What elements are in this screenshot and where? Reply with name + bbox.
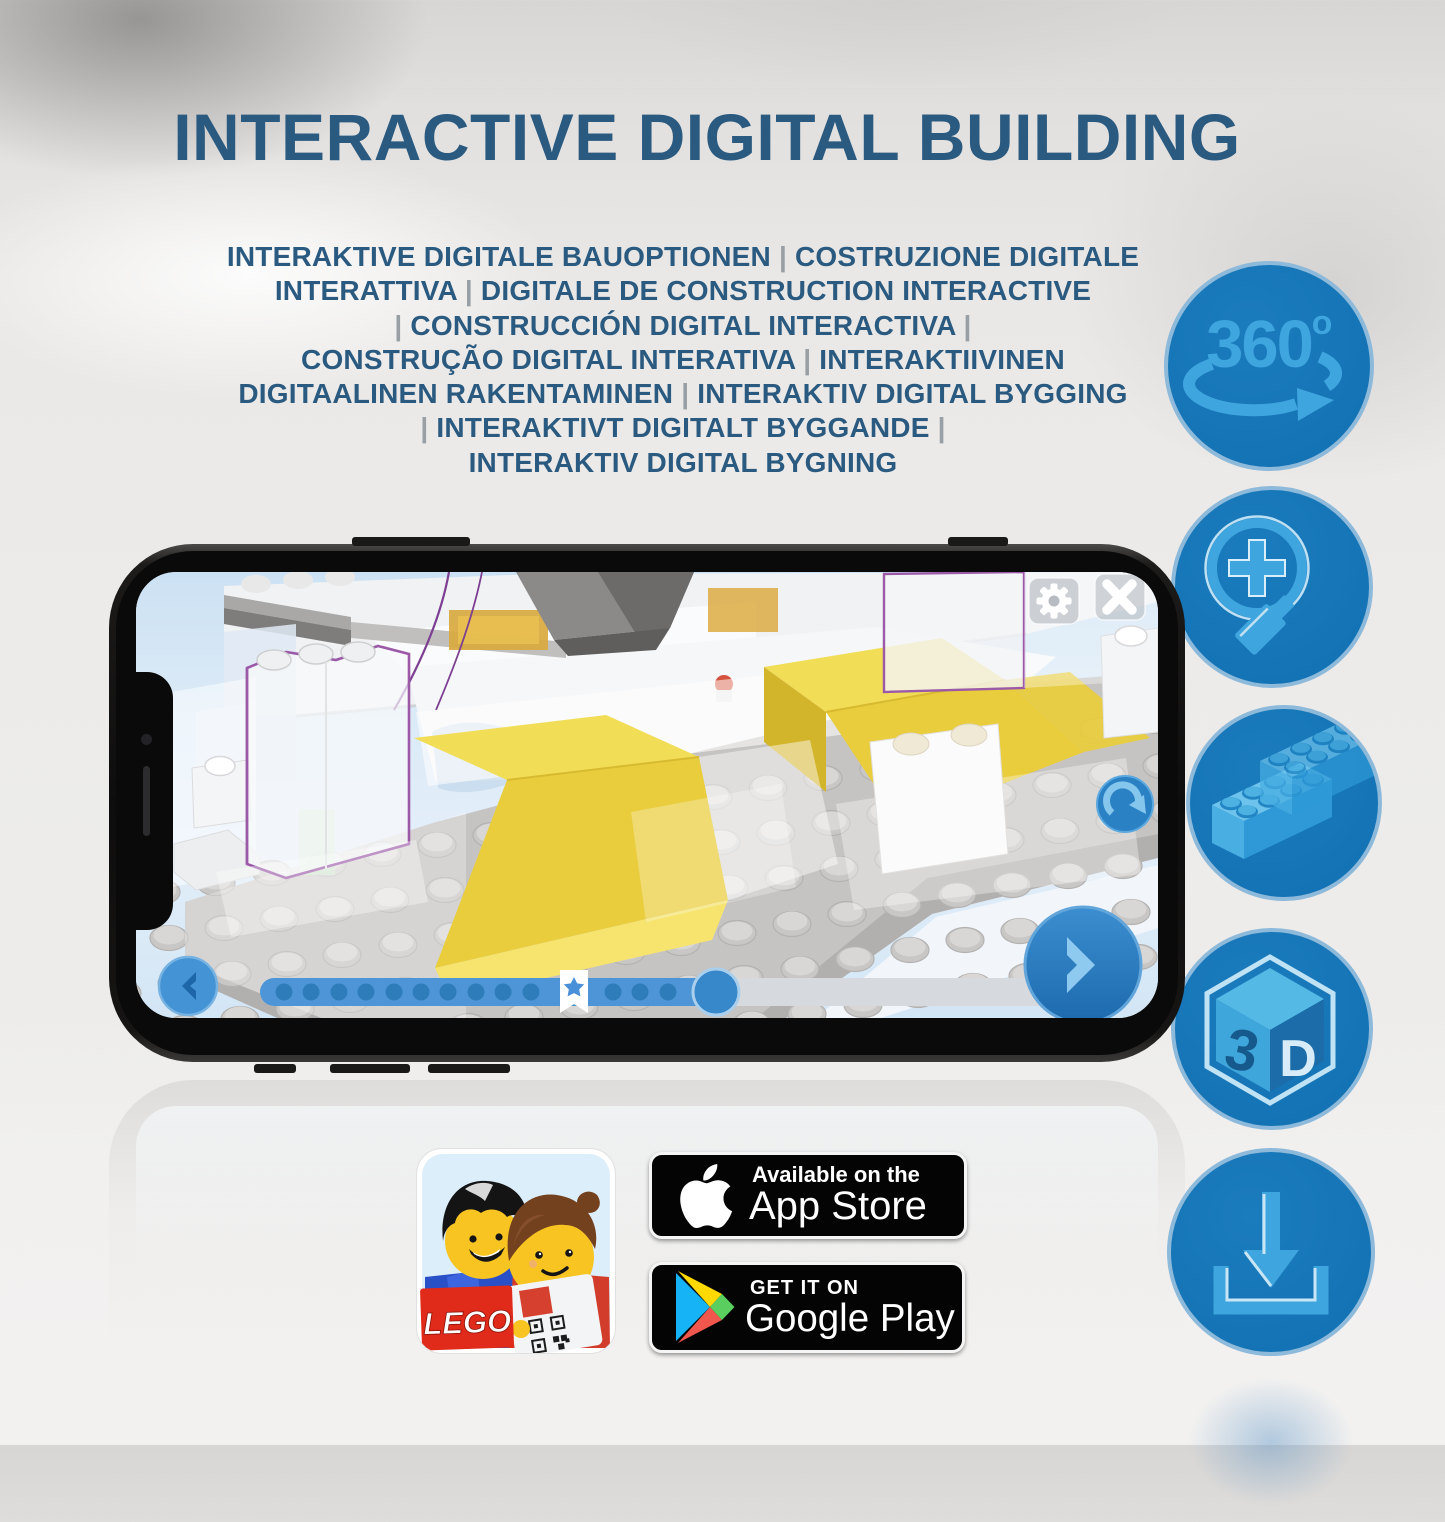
svg-text:D: D <box>1279 1030 1317 1088</box>
svg-text:App Store: App Store <box>749 1184 927 1228</box>
svg-text:LEGO: LEGO <box>423 1303 512 1341</box>
svg-text:Google Play: Google Play <box>745 1297 955 1340</box>
svg-text:o: o <box>1312 304 1333 342</box>
svg-text:GET IT ON: GET IT ON <box>750 1277 859 1299</box>
svg-text:360: 360 <box>1206 307 1312 382</box>
